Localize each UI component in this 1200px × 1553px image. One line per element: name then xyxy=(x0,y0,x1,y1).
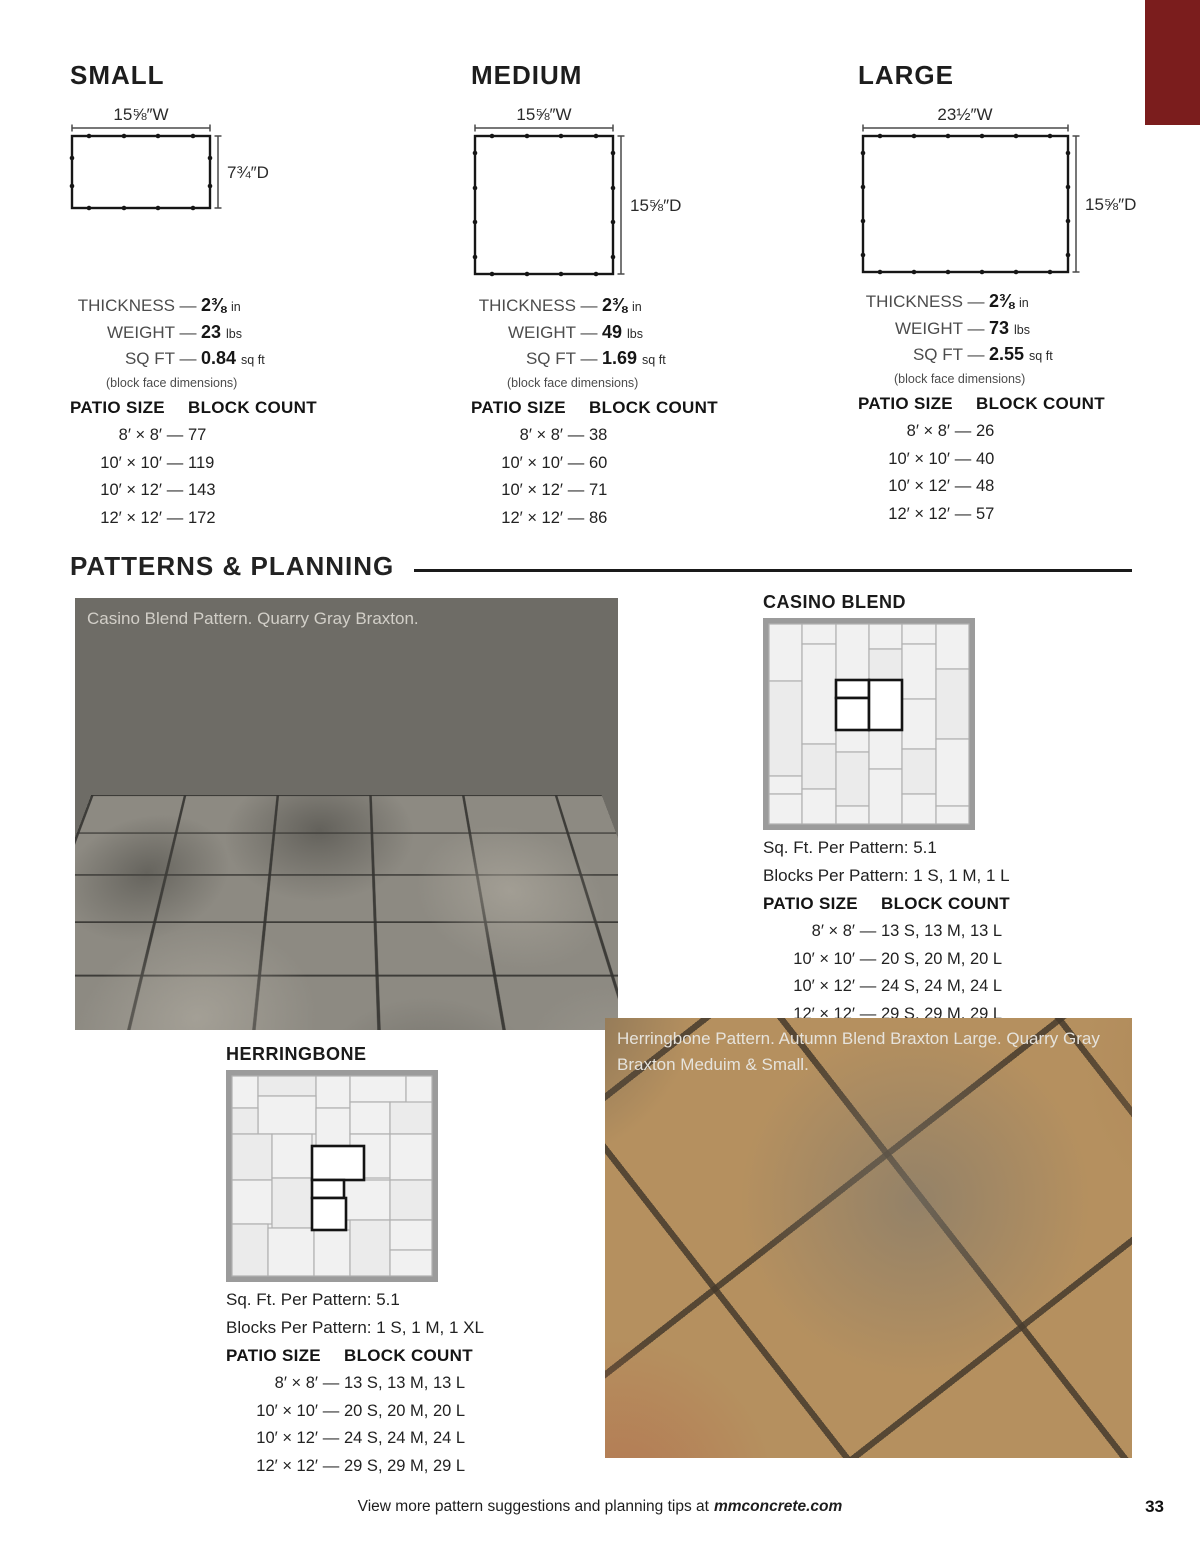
table-header: PATIO SIZE BLOCK COUNT xyxy=(70,398,400,420)
highlight-medium-block xyxy=(836,698,869,730)
table-row: 12′ × 12′—57 xyxy=(858,505,1188,533)
page-number: 33 xyxy=(1145,1497,1164,1517)
patterns-heading-text: PATTERNS & PLANNING xyxy=(70,551,394,582)
spec-row-sqft: SQ FT — 0.84sq ft xyxy=(70,348,370,375)
spec-list: THICKNESS — 2⅜in WEIGHT — 49lbs SQ FT — … xyxy=(471,295,771,390)
heading-rule xyxy=(414,569,1132,572)
casino-blend-diagram xyxy=(763,618,975,830)
table-row: 10′ × 10′—119 xyxy=(70,454,400,482)
footer-website-link[interactable]: mmconcrete.com xyxy=(714,1498,842,1515)
large-block-diagram: 23½″W 15⅝″D xyxy=(854,104,1164,294)
size-section-medium: MEDIUM 15⅝″W 15⅝″D THICKNESS — 2⅜in WEIG… xyxy=(471,0,816,540)
spec-row-weight: WEIGHT — 49lbs xyxy=(471,322,771,349)
size-section-small: SMALL 15⅝″W 7¾″D THICKNESS — 2⅜in WEIGHT… xyxy=(70,0,415,540)
spec-row-weight: WEIGHT — 23lbs xyxy=(70,322,370,349)
small-block-diagram: 15⅝″W 7¾″D xyxy=(62,104,322,226)
table-row: 8′ × 8′—77 xyxy=(70,426,400,454)
catalog-page: SMALL 15⅝″W 7¾″D THICKNESS — 2⅜in WEIGHT… xyxy=(0,0,1200,1553)
size-section-large: LARGE 23½″W 15⅝″D THICKNESS — 2⅜in xyxy=(858,0,1200,540)
herringbone-section: HERRINGBONE Sq. Ft. Per Pattern: 5.1 Blo… xyxy=(226,1044,616,1484)
highlight-xl-block xyxy=(312,1146,364,1180)
table-row: 8′ × 8′—26 xyxy=(858,422,1188,450)
casino-pattern-photo: Casino Blend Pattern. Quarry Gray Braxto… xyxy=(75,598,618,1030)
table-row: 10′ × 12′—24 S, 24 M, 24 L xyxy=(226,1429,556,1457)
table-header: PATIO SIZE BLOCK COUNT xyxy=(471,398,801,420)
spec-row-thickness: THICKNESS — 2⅜in xyxy=(471,295,771,322)
photo-caption: Herringbone Pattern. Autumn Blend Braxto… xyxy=(617,1026,1122,1078)
highlight-small-block xyxy=(312,1180,344,1198)
table-row: 10′ × 12′—48 xyxy=(858,477,1188,505)
block-outline xyxy=(72,136,210,208)
table-row: 10′ × 12′—143 xyxy=(70,481,400,509)
spec-row-thickness: THICKNESS — 2⅜in xyxy=(70,295,370,322)
herringbone-pattern-photo: Herringbone Pattern. Autumn Blend Braxto… xyxy=(605,1018,1132,1458)
spec-list: THICKNESS — 2⅜in WEIGHT — 73lbs SQ FT — … xyxy=(858,291,1158,386)
patio-table-casino: PATIO SIZE BLOCK COUNT 8′ × 8′—13 S, 13 … xyxy=(763,894,1093,1032)
patterns-section-heading: PATTERNS & PLANNING xyxy=(70,551,1132,582)
gray-paver-texture xyxy=(75,795,618,1030)
highlight-small-block xyxy=(836,680,869,698)
table-row: 12′ × 12′—172 xyxy=(70,509,400,537)
blocks-per-pattern: Blocks Per Pattern: 1 S, 1 M, 1 XL xyxy=(226,1318,484,1338)
depth-dimension-label: 15⅝″D xyxy=(630,196,681,215)
table-row: 8′ × 8′—38 xyxy=(471,426,801,454)
patio-table-herringbone: PATIO SIZE BLOCK COUNT 8′ × 8′—13 S, 13 … xyxy=(226,1346,556,1484)
spec-note: (block face dimensions) xyxy=(894,372,1158,386)
size-title-large: LARGE xyxy=(858,60,954,91)
casino-blend-section: CASINO BLEND Sq. Ft. Per Pattern: 5.1 Bl… xyxy=(763,592,1153,1032)
page-footer: View more pattern suggestions and planni… xyxy=(0,1498,1200,1516)
sqft-per-pattern: Sq. Ft. Per Pattern: 5.1 xyxy=(763,838,937,858)
highlight-medium-block xyxy=(312,1198,346,1230)
table-header: PATIO SIZE BLOCK COUNT xyxy=(763,894,1093,916)
sqft-per-pattern: Sq. Ft. Per Pattern: 5.1 xyxy=(226,1290,400,1310)
size-title-medium: MEDIUM xyxy=(471,60,582,91)
blocks-per-pattern: Blocks Per Pattern: 1 S, 1 M, 1 L xyxy=(763,866,1010,886)
spec-row-thickness: THICKNESS — 2⅜in xyxy=(858,291,1158,318)
patio-table-small: PATIO SIZE BLOCK COUNT 8′ × 8′—77 10′ × … xyxy=(70,398,400,536)
herringbone-title: HERRINGBONE xyxy=(226,1044,367,1065)
size-title-small: SMALL xyxy=(70,60,165,91)
autumn-paver-texture xyxy=(605,1018,1132,1458)
table-row: 12′ × 12′—29 S, 29 M, 29 L xyxy=(226,1457,556,1485)
table-row: 10′ × 12′—71 xyxy=(471,481,801,509)
table-row: 8′ × 8′—13 S, 13 M, 13 L xyxy=(763,922,1093,950)
block-outline xyxy=(475,136,613,274)
table-row: 10′ × 12′—24 S, 24 M, 24 L xyxy=(763,977,1093,1005)
spec-list: THICKNESS — 2⅜in WEIGHT — 23lbs SQ FT — … xyxy=(70,295,370,390)
patio-table-medium: PATIO SIZE BLOCK COUNT 8′ × 8′—38 10′ × … xyxy=(471,398,801,536)
table-header: PATIO SIZE BLOCK COUNT xyxy=(858,394,1188,416)
casino-blend-title: CASINO BLEND xyxy=(763,592,906,613)
patio-table-large: PATIO SIZE BLOCK COUNT 8′ × 8′—26 10′ × … xyxy=(858,394,1188,532)
spec-row-sqft: SQ FT — 2.55sq ft xyxy=(858,344,1158,371)
spec-note: (block face dimensions) xyxy=(507,376,771,390)
table-header: PATIO SIZE BLOCK COUNT xyxy=(226,1346,556,1368)
depth-dimension-label: 15⅝″D xyxy=(1085,195,1136,214)
herringbone-diagram xyxy=(226,1070,438,1282)
photo-caption: Casino Blend Pattern. Quarry Gray Braxto… xyxy=(87,606,419,632)
block-outline xyxy=(863,136,1068,272)
table-row: 10′ × 10′—60 xyxy=(471,454,801,482)
table-row: 10′ × 10′—40 xyxy=(858,450,1188,478)
spec-row-sqft: SQ FT — 1.69sq ft xyxy=(471,348,771,375)
width-dimension-label: 15⅝″W xyxy=(113,105,168,124)
table-row: 10′ × 10′—20 S, 20 M, 20 L xyxy=(763,950,1093,978)
medium-block-diagram: 15⅝″W 15⅝″D xyxy=(464,104,744,294)
table-row: 8′ × 8′—13 S, 13 M, 13 L xyxy=(226,1374,556,1402)
depth-dimension-label: 7¾″D xyxy=(227,163,269,182)
table-row: 12′ × 12′—86 xyxy=(471,509,801,537)
footer-text: View more pattern suggestions and planni… xyxy=(358,1498,709,1515)
width-dimension-label: 23½″W xyxy=(937,105,992,124)
spec-note: (block face dimensions) xyxy=(106,376,370,390)
spec-row-weight: WEIGHT — 73lbs xyxy=(858,318,1158,345)
highlight-large-block xyxy=(869,680,902,730)
width-dimension-label: 15⅝″W xyxy=(516,105,571,124)
table-row: 10′ × 10′—20 S, 20 M, 20 L xyxy=(226,1402,556,1430)
